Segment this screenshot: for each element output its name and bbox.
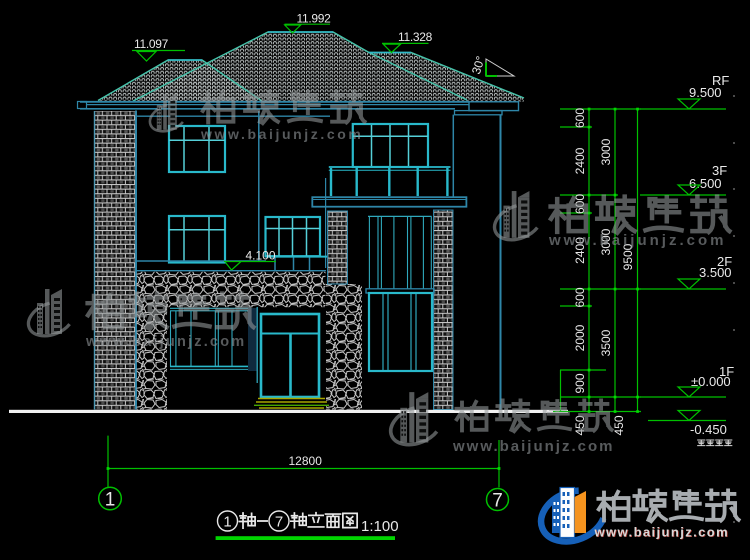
svg-text:3.500: 3.500 [699, 265, 732, 280]
svg-text:7: 7 [492, 491, 503, 512]
svg-text:3500: 3500 [599, 329, 613, 356]
svg-text:600: 600 [573, 108, 587, 128]
svg-text:4.100: 4.100 [246, 249, 276, 263]
svg-text:www.baijunjz.com: www.baijunjz.com [200, 126, 363, 142]
svg-text:600: 600 [573, 287, 587, 307]
svg-text:1: 1 [223, 514, 231, 531]
svg-text:www.baijunjz.com: www.baijunjz.com [594, 525, 730, 540]
svg-text:11.097: 11.097 [134, 37, 169, 51]
svg-text:www.baijunjz.com: www.baijunjz.com [85, 334, 246, 350]
svg-text:6.500: 6.500 [689, 176, 722, 191]
svg-text:11.328: 11.328 [398, 30, 433, 44]
svg-text:1: 1 [105, 490, 116, 511]
svg-text:11.992: 11.992 [297, 12, 332, 26]
svg-text:12800: 12800 [289, 454, 323, 468]
svg-text:2000: 2000 [573, 324, 587, 351]
svg-text:9.500: 9.500 [689, 85, 722, 100]
svg-text:-0.450: -0.450 [690, 422, 727, 437]
svg-text:450: 450 [612, 415, 626, 435]
svg-text:3000: 3000 [599, 138, 613, 165]
svg-text:1:100: 1:100 [361, 518, 399, 535]
svg-text:www.baijunjz.com: www.baijunjz.com [452, 438, 614, 455]
svg-text:7: 7 [275, 514, 283, 531]
svg-text:900: 900 [573, 373, 587, 393]
svg-text:2400: 2400 [573, 147, 587, 174]
svg-text:www.baijunjz.com: www.baijunjz.com [548, 232, 726, 249]
